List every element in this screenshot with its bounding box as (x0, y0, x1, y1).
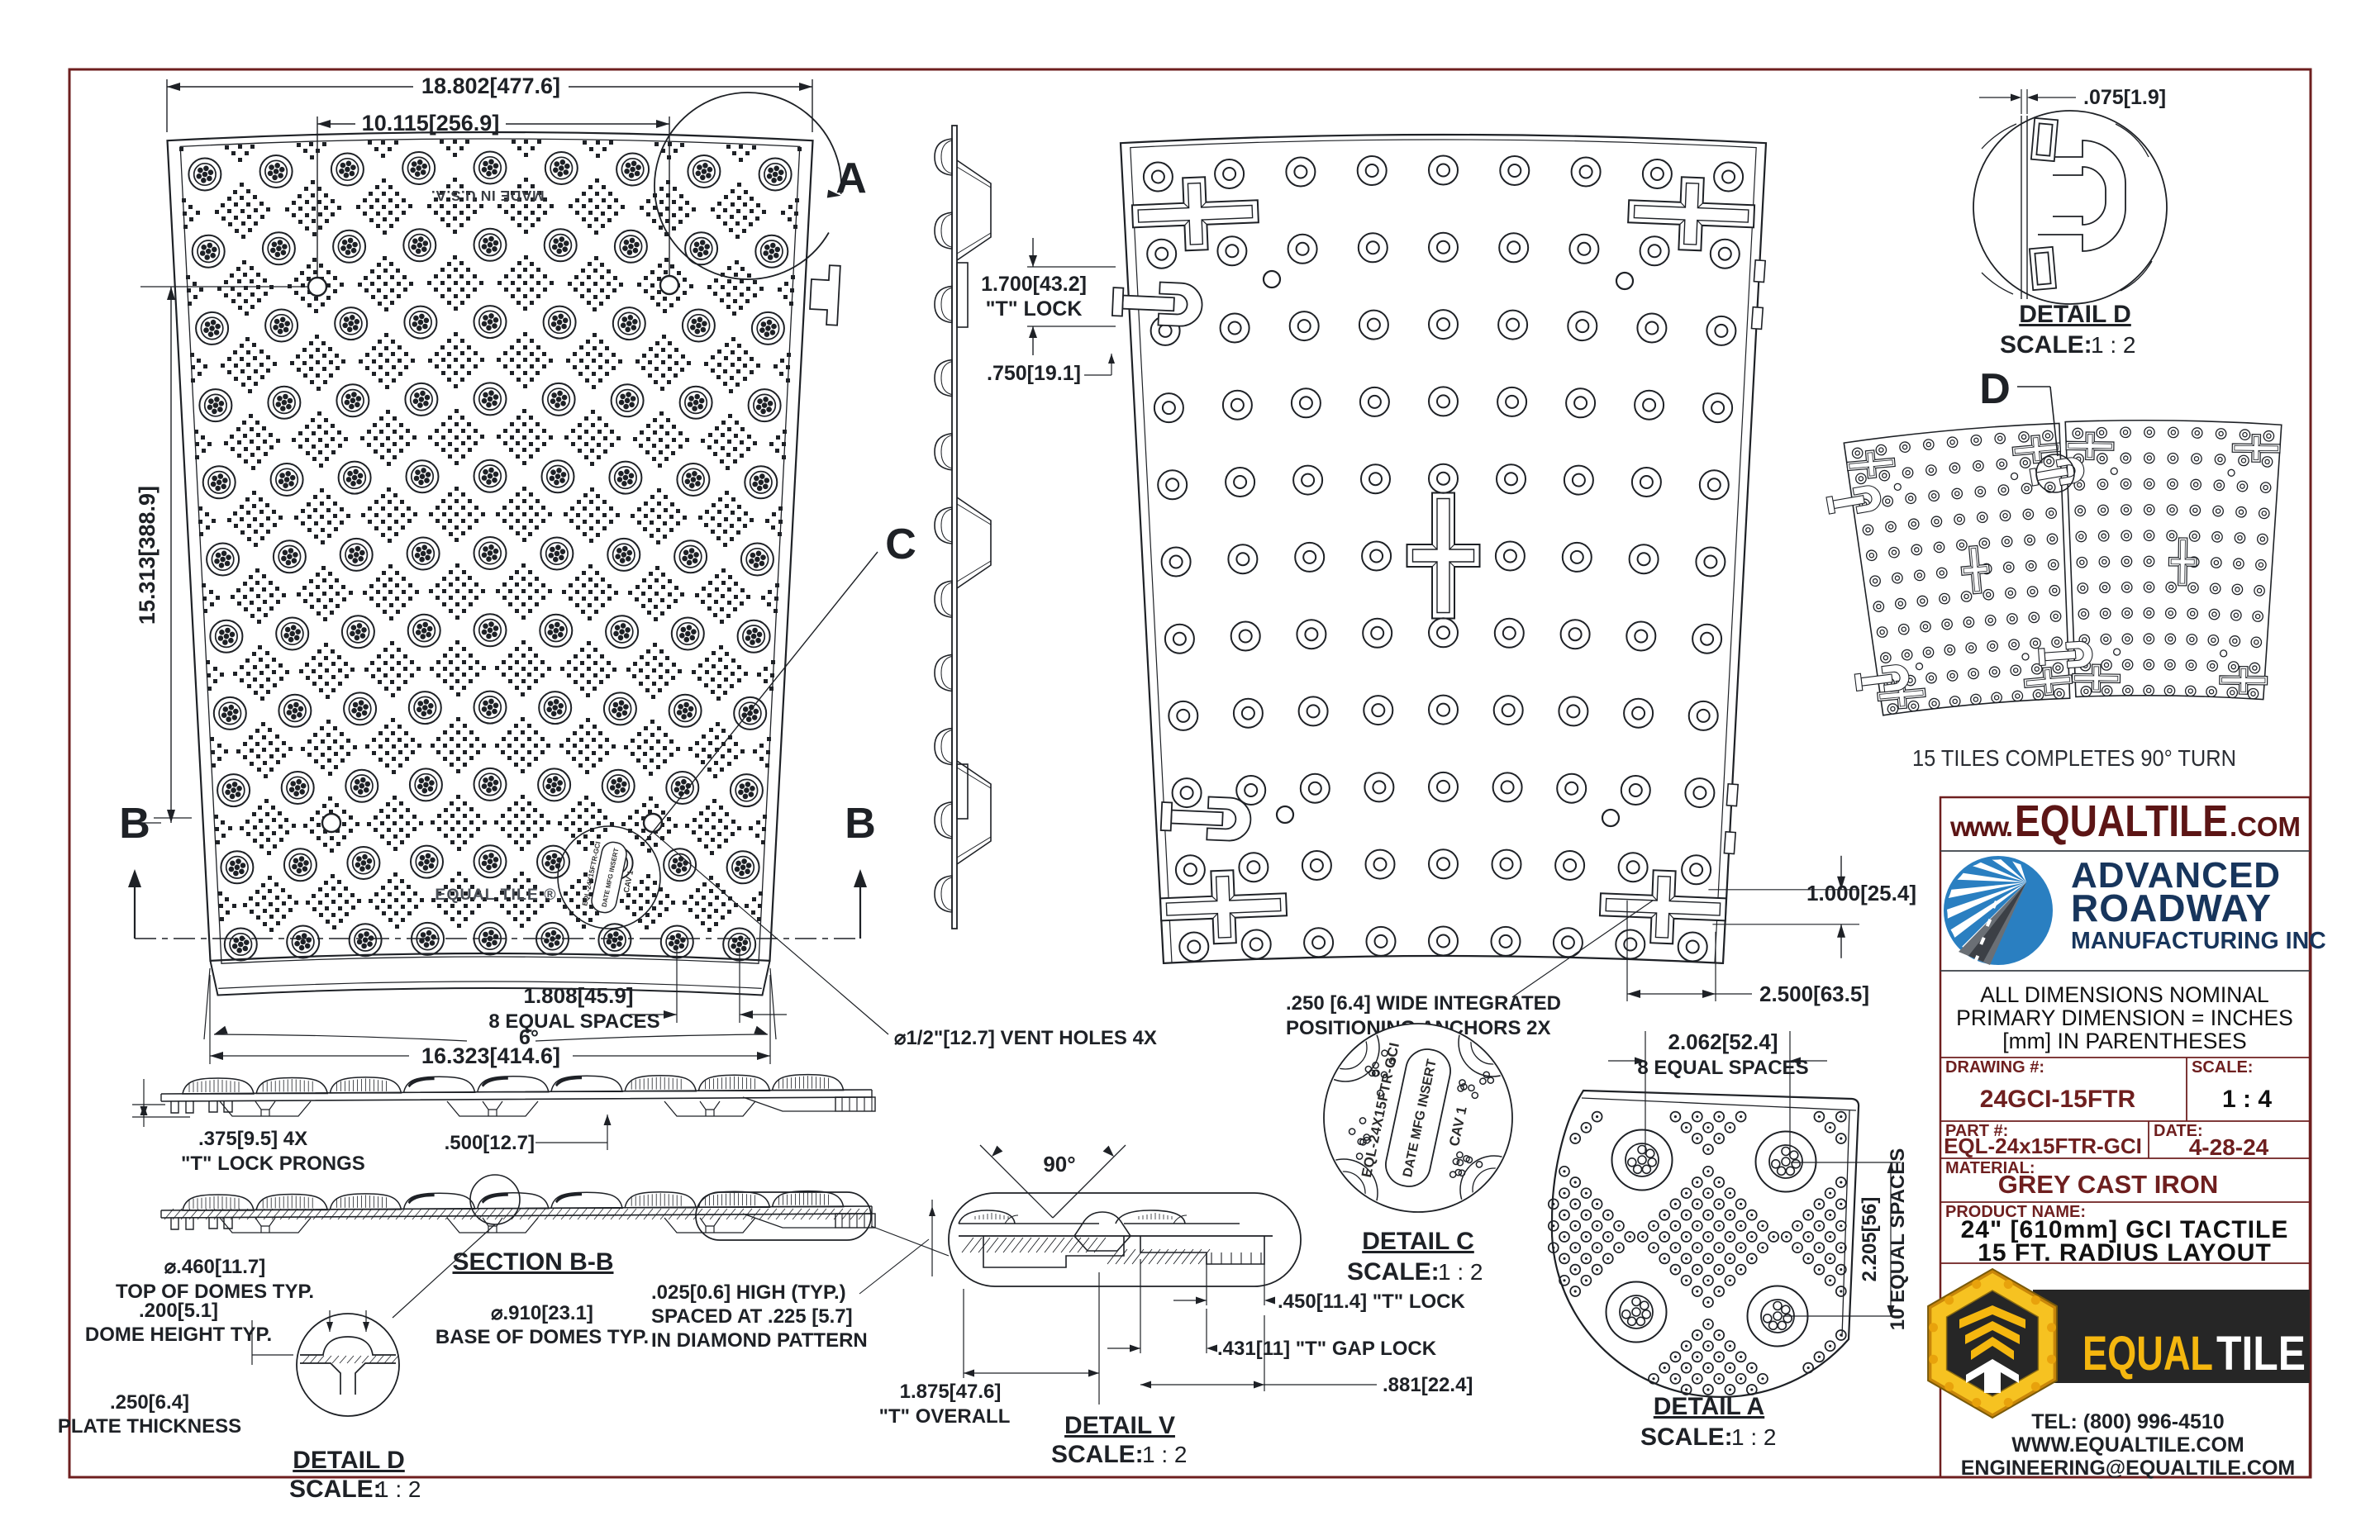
svg-text:.881[22.4]: .881[22.4] (1383, 1374, 1473, 1396)
svg-text:D: D (1979, 365, 2011, 413)
svg-text:.500[12.7]: .500[12.7] (445, 1132, 535, 1154)
svg-text:.450[11.4] "T" LOCK: .450[11.4] "T" LOCK (1278, 1290, 1465, 1313)
svg-text:ROADWAY: ROADWAY (2071, 886, 2272, 929)
svg-text:www.: www. (1949, 811, 2013, 842)
svg-text:4-28-24: 4-28-24 (2189, 1134, 2269, 1160)
svg-text:DETAIL A: DETAIL A (1654, 1393, 1764, 1420)
svg-text:A: A (835, 154, 867, 202)
svg-text:EQUAL: EQUAL (2082, 1327, 2213, 1381)
svg-text:1.875[47.6]: 1.875[47.6] (900, 1381, 1002, 1403)
svg-text:10 EQUAL SPACES: 10 EQUAL SPACES (1887, 1148, 1909, 1331)
svg-text:.375[9.5] 4X: .375[9.5] 4X (198, 1128, 307, 1150)
svg-text:GREY CAST IRON: GREY CAST IRON (1998, 1170, 2218, 1199)
svg-text:.750[19.1]: .750[19.1] (987, 362, 1081, 385)
svg-text:SCALE:: SCALE: (2000, 331, 2092, 359)
svg-text:[mm] IN PARENTHESES: [mm] IN PARENTHESES (2002, 1029, 2246, 1053)
svg-text:SCALE:: SCALE: (1640, 1424, 1733, 1451)
svg-text:WWW.EQUALTILE.COM: WWW.EQUALTILE.COM (2011, 1433, 2244, 1457)
svg-text:.025[0.6] HIGH (TYP.): .025[0.6] HIGH (TYP.) (651, 1281, 846, 1304)
svg-text:8 EQUAL SPACES: 8 EQUAL SPACES (1637, 1057, 1808, 1079)
svg-text:BASE OF DOMES TYP.: BASE OF DOMES TYP. (436, 1326, 649, 1348)
svg-text:1 : 2: 1 : 2 (1438, 1259, 1483, 1285)
svg-text:ENGINEERING@EQUALTILE.COM: ENGINEERING@EQUALTILE.COM (1961, 1457, 2295, 1480)
svg-text:15 FT. RADIUS LAYOUT: 15 FT. RADIUS LAYOUT (1978, 1239, 2272, 1267)
svg-text:B: B (845, 800, 876, 848)
svg-text:MANUFACTURING INC: MANUFACTURING INC (2071, 928, 2326, 954)
svg-text:⌀.910[23.1]: ⌀.910[23.1] (491, 1302, 593, 1324)
svg-text:SECTION B-B: SECTION B-B (453, 1248, 614, 1276)
svg-text:2.062[52.4]: 2.062[52.4] (1668, 1029, 1778, 1054)
svg-text:"T" OVERALL: "T" OVERALL (879, 1405, 1011, 1428)
svg-text:B: B (119, 800, 150, 848)
svg-text:C: C (885, 520, 916, 568)
svg-text:MADE IN U.S.A.: MADE IN U.S.A. (431, 188, 544, 204)
svg-text:EQUALTILE: EQUALTILE (2015, 796, 2228, 846)
svg-text:⌀.460[11.7]: ⌀.460[11.7] (164, 1256, 266, 1278)
svg-text:SCALE:: SCALE: (1051, 1441, 1144, 1468)
svg-text:1 : 2: 1 : 2 (1142, 1442, 1187, 1467)
svg-text:PRIMARY DIMENSION = INCHES: PRIMARY DIMENSION = INCHES (1956, 1005, 2293, 1030)
svg-text:.431[11] "T" GAP LOCK: .431[11] "T" GAP LOCK (1217, 1338, 1437, 1360)
svg-text:TILE: TILE (2216, 1327, 2306, 1381)
svg-text:DETAIL C: DETAIL C (1362, 1228, 1474, 1255)
svg-text:ALL DIMENSIONS NOMINAL: ALL DIMENSIONS NOMINAL (1980, 982, 2268, 1007)
svg-text:2.500[63.5]: 2.500[63.5] (1759, 982, 1869, 1006)
svg-text:1 : 2: 1 : 2 (2091, 332, 2135, 358)
svg-text:"T" LOCK PRONGS: "T" LOCK PRONGS (181, 1153, 365, 1175)
svg-text:SCALE:: SCALE: (289, 1476, 382, 1503)
svg-text:15 TILES COMPLETES 90° TURN: 15 TILES COMPLETES 90° TURN (1912, 745, 2236, 771)
svg-text:8 EQUAL SPACES: 8 EQUAL SPACES (488, 1010, 659, 1033)
svg-text:DOME HEIGHT TYP.: DOME HEIGHT TYP. (85, 1324, 272, 1346)
svg-text:SCALE:: SCALE: (1347, 1258, 1440, 1286)
svg-text:10.115[256.9]: 10.115[256.9] (362, 111, 500, 135)
svg-text:EQL-24x15FTR-GCI: EQL-24x15FTR-GCI (1944, 1134, 2142, 1158)
svg-text:.COM: .COM (2230, 811, 2301, 842)
svg-text:⌀1/2"[12.7] VENT HOLES 4X: ⌀1/2"[12.7] VENT HOLES 4X (894, 1027, 1157, 1049)
svg-text:1 : 2: 1 : 2 (376, 1476, 421, 1502)
svg-text:1 : 2: 1 : 2 (1731, 1424, 1776, 1450)
svg-text:.200[5.1]: .200[5.1] (139, 1300, 218, 1322)
svg-text:.250[6.4]: .250[6.4] (110, 1391, 189, 1414)
svg-text:1 : 4: 1 : 4 (2222, 1086, 2272, 1113)
svg-text:EQUAL TILE ®: EQUAL TILE ® (435, 886, 556, 904)
svg-text:DETAIL V: DETAIL V (1064, 1412, 1175, 1439)
svg-text:IN DIAMOND PATTERN: IN DIAMOND PATTERN (651, 1329, 868, 1352)
svg-text:24GCI-15FTR: 24GCI-15FTR (1980, 1086, 2136, 1113)
svg-text:2.205[56]: 2.205[56] (1859, 1197, 1881, 1282)
svg-text:1.000[25.4]: 1.000[25.4] (1806, 881, 1916, 905)
svg-text:90°: 90° (1043, 1152, 1075, 1176)
svg-text:"T" LOCK: "T" LOCK (986, 297, 1083, 321)
svg-text:16.323[414.6]: 16.323[414.6] (421, 1043, 560, 1068)
svg-text:18.802[477.6]: 18.802[477.6] (421, 74, 560, 98)
svg-text:1.808[45.9]: 1.808[45.9] (524, 983, 634, 1008)
svg-text:.075[1.9]: .075[1.9] (2083, 86, 2166, 109)
svg-text:SPACED AT .225 [5.7]: SPACED AT .225 [5.7] (651, 1305, 853, 1328)
svg-text:DETAIL D: DETAIL D (2019, 301, 2131, 328)
svg-text:DETAIL D: DETAIL D (293, 1447, 405, 1474)
svg-text:PLATE THICKNESS: PLATE THICKNESS (58, 1415, 241, 1438)
svg-text:1.700[43.2]: 1.700[43.2] (981, 273, 1087, 296)
svg-text:SCALE:: SCALE: (2192, 1058, 2253, 1077)
svg-text:DRAWING #:: DRAWING #: (1945, 1058, 2044, 1077)
svg-text:15.313[388.9]: 15.313[388.9] (135, 486, 159, 625)
svg-text:TEL: (800) 996-4510: TEL: (800) 996-4510 (2031, 1410, 2224, 1433)
svg-text:.250 [6.4] WIDE INTEGRATED: .250 [6.4] WIDE INTEGRATED (1286, 992, 1561, 1015)
